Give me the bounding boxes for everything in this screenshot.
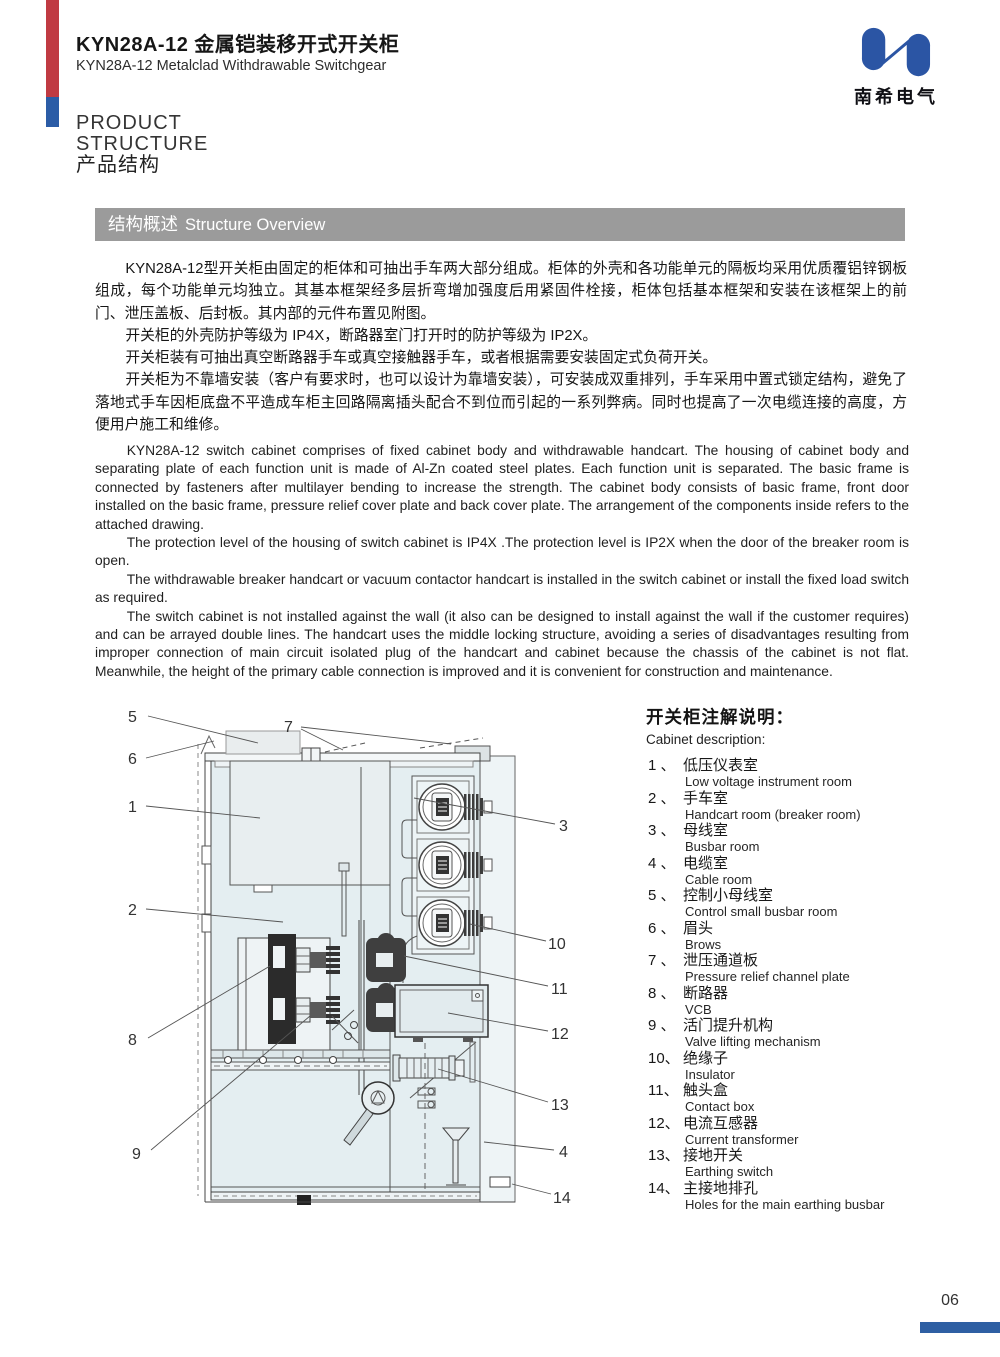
diagram-callout-8: 8	[128, 1032, 137, 1049]
legend-item-en: Contact box	[685, 1100, 998, 1114]
diagram-callout-14: 14	[553, 1190, 571, 1207]
legend-item-number: 3 、	[646, 821, 683, 840]
legend-item-zh: 泄压通道板	[683, 951, 758, 970]
footer-accent-bar	[920, 1322, 1000, 1333]
legend-item-en: Busbar room	[685, 840, 998, 854]
legend-item-en: Cable room	[685, 873, 998, 887]
legend-item-en: Low voltage instrument room	[685, 775, 998, 789]
banner-title-zh: 结构概述	[108, 214, 178, 234]
legend-item-en: Insulator	[685, 1068, 998, 1082]
page-title-en: KYN28A-12 Metalclad Withdrawable Switchg…	[76, 58, 386, 74]
structure-overview-banner: 结构概述Structure Overview	[95, 208, 905, 241]
diagram-callout-5: 5	[128, 709, 137, 726]
legend-item-number: 8 、	[646, 984, 683, 1003]
legend-item-zh: 接地开关	[683, 1146, 743, 1165]
legend-item-zh: 主接地排孔	[683, 1179, 758, 1198]
legend-item-en: Handcart room (breaker room)	[685, 808, 998, 822]
legend-item-zh: 控制小母线室	[683, 886, 773, 905]
legend-title-en: Cabinet description:	[646, 732, 998, 747]
catalog-page: { "header": { "title_zh": "KYN28A-12 金属铠…	[0, 0, 1000, 1357]
diagram-callout-11: 11	[551, 981, 568, 998]
legend-title-zh: 开关柜注解说明：	[646, 704, 998, 729]
legend-item-number: 2 、	[646, 789, 683, 808]
legend-item: 7 、泄压通道板 Pressure relief channel plate	[646, 951, 998, 984]
company-logo: 南希电气	[838, 22, 954, 109]
legend-item: 9 、活门提升机构 Valve lifting mechanism	[646, 1016, 998, 1049]
cabinet-description-legend: 开关柜注解说明： Cabinet description: 1 、低压仪表室 L…	[646, 704, 998, 1211]
intro-en-p3: The withdrawable breaker handcart or vac…	[95, 571, 909, 608]
intro-zh-p4: 开关柜为不靠墙安装（客户有要求时，也可以设计为靠墙安装），可安装成双重排列，手车…	[95, 369, 907, 436]
legend-item-zh: 电流互感器	[683, 1114, 758, 1133]
legend-item-zh: 断路器	[683, 984, 728, 1003]
diagram-callout-13: 13	[551, 1097, 569, 1114]
legend-item: 1 、低压仪表室 Low voltage instrument room	[646, 756, 998, 789]
earthing-busbar-hole	[490, 1177, 510, 1187]
legend-item-number: 14、	[646, 1179, 683, 1198]
legend-list: 1 、低压仪表室 Low voltage instrument room 2 、…	[646, 756, 998, 1211]
intro-en-p4: The switch cabinet is not installed agai…	[95, 608, 909, 682]
diagram-callout-6: 6	[128, 751, 137, 768]
legend-item: 2 、手车室 Handcart room (breaker room)	[646, 789, 998, 822]
intro-zh-p2: 开关柜的外壳防护等级为 IP4X，断路器室门打开时的防护等级为 IP2X。	[95, 325, 907, 347]
intro-zh-p3: 开关柜装有可抽出真空断路器手车或真空接触器手车，或者根据需要安装固定式负荷开关。	[95, 347, 907, 369]
accent-bar-red	[46, 0, 59, 97]
intro-zh-p1: KYN28A-12型开关柜由固定的柜体和可抽出手车两大部分组成。柜体的外壳和各功…	[95, 258, 907, 325]
diagram-callout-9: 9	[132, 1146, 141, 1163]
legend-item-zh: 母线室	[683, 821, 728, 840]
company-logo-icon	[853, 22, 939, 82]
accent-bar-blue	[46, 97, 59, 127]
switchgear-section-diagram: 5 6 1 2 7 3 10 11 12 8 9 13 4 14	[118, 698, 643, 1220]
legend-item: 8 、断路器 VCB	[646, 984, 998, 1017]
diagram-callout-1: 1	[128, 799, 137, 816]
legend-item-number: 7 、	[646, 951, 683, 970]
page-number: 06	[918, 1292, 982, 1310]
legend-item-number: 6 、	[646, 919, 683, 938]
legend-item-en: Control small busbar room	[685, 905, 998, 919]
intro-text-zh: KYN28A-12型开关柜由固定的柜体和可抽出手车两大部分组成。柜体的外壳和各功…	[95, 258, 907, 436]
diagram-callout-10: 10	[548, 936, 566, 953]
diagram-callout-4: 4	[559, 1144, 568, 1161]
legend-item-number: 12、	[646, 1114, 683, 1133]
legend-item: 4 、电缆室 Cable room	[646, 854, 998, 887]
legend-item-number: 1 、	[646, 756, 683, 775]
legend-item-en: Holes for the main earthing busbar	[685, 1198, 998, 1212]
section-heading-line1: PRODUCT	[76, 113, 208, 134]
legend-item: 14、主接地排孔 Holes for the main earthing bus…	[646, 1179, 998, 1212]
legend-item-en: Valve lifting mechanism	[685, 1035, 998, 1049]
legend-item-en: Earthing switch	[685, 1165, 998, 1179]
section-heading-line3: 产品结构	[76, 155, 208, 176]
section-heading: PRODUCT STRUCTURE 产品结构	[76, 113, 208, 176]
legend-item-number: 5 、	[646, 886, 683, 905]
legend-item: 6 、眉头 Brows	[646, 919, 998, 952]
legend-item: 11、触头盒 Contact box	[646, 1081, 998, 1114]
company-logo-text: 南希电气	[838, 83, 954, 109]
legend-item-number: 10、	[646, 1049, 683, 1068]
legend-item-en: Current transformer	[685, 1133, 998, 1147]
intro-text-en: KYN28A-12 switch cabinet comprises of fi…	[95, 442, 909, 681]
switchgear-diagram-svg: 5 6 1 2 7 3 10 11 12 8 9 13 4 14	[118, 698, 643, 1220]
legend-item-zh: 电缆室	[683, 854, 728, 873]
diagram-callout-3: 3	[559, 818, 568, 835]
diagram-callout-12: 12	[551, 1026, 569, 1043]
page-title-zh: KYN28A-12 金属铠装移开式开关柜	[76, 28, 399, 57]
legend-item-zh: 触头盒	[683, 1081, 728, 1100]
legend-item-zh: 绝缘子	[683, 1049, 728, 1068]
lv-instrument-room	[230, 761, 390, 892]
legend-item: 12、电流互感器 Current transformer	[646, 1114, 998, 1147]
legend-item-zh: 手车室	[683, 789, 728, 808]
diagram-callout-2: 2	[128, 902, 137, 919]
section-heading-line2: STRUCTURE	[76, 134, 208, 155]
legend-item-zh: 活门提升机构	[683, 1016, 773, 1035]
legend-item: 3 、母线室 Busbar room	[646, 821, 998, 854]
legend-item-en: Pressure relief channel plate	[685, 970, 998, 984]
intro-en-p1: KYN28A-12 switch cabinet comprises of fi…	[95, 442, 909, 534]
legend-item-en: Brows	[685, 938, 998, 952]
legend-item-number: 9 、	[646, 1016, 683, 1035]
brow-plate	[201, 736, 215, 754]
diagram-callout-7: 7	[284, 719, 293, 736]
legend-item: 10、绝缘子 Insulator	[646, 1049, 998, 1082]
accent-bar	[46, 0, 59, 127]
legend-item-number: 11、	[646, 1081, 683, 1100]
legend-item-number: 4 、	[646, 854, 683, 873]
legend-item: 5 、控制小母线室 Control small busbar room	[646, 886, 998, 919]
legend-item-zh: 低压仪表室	[683, 756, 758, 775]
legend-item-en: VCB	[685, 1003, 998, 1017]
banner-title-en: Structure Overview	[185, 216, 325, 234]
intro-en-p2: The protection level of the housing of s…	[95, 534, 909, 571]
legend-item-number: 13、	[646, 1146, 683, 1165]
legend-item: 13、接地开关 Earthing switch	[646, 1146, 998, 1179]
legend-item-zh: 眉头	[683, 919, 713, 938]
